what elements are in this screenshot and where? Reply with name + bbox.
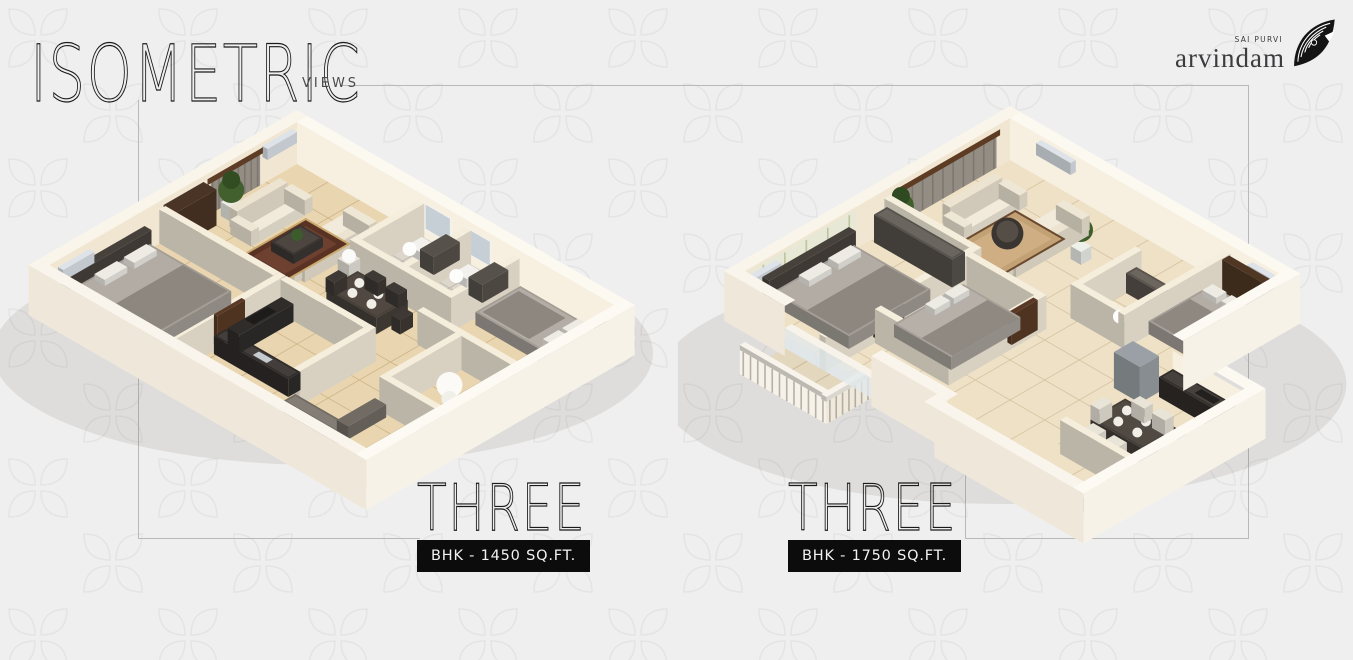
plan-label-1450: THREE BHK - 1450 SQ.FT. bbox=[417, 482, 640, 572]
page-subtitle: VIEWS bbox=[302, 76, 359, 91]
floor-plan-1750-illustration bbox=[678, 78, 1353, 560]
brand-leaf-icon bbox=[1291, 16, 1337, 72]
plan-label-1750: THREE BHK - 1750 SQ.FT. bbox=[788, 482, 1011, 572]
plan-1450-title: THREE bbox=[417, 482, 586, 536]
page-title: ISOMETRIC bbox=[30, 36, 361, 114]
brand-name: arvindam bbox=[1175, 43, 1285, 73]
page-header: ISOMETRIC VIEWS bbox=[30, 36, 478, 114]
plan-1750-title: THREE bbox=[788, 482, 957, 536]
page: ISOMETRIC VIEWS SAI PURVI arvindam THREE… bbox=[0, 0, 1353, 660]
brand-logo: SAI PURVI arvindam bbox=[1175, 16, 1337, 72]
